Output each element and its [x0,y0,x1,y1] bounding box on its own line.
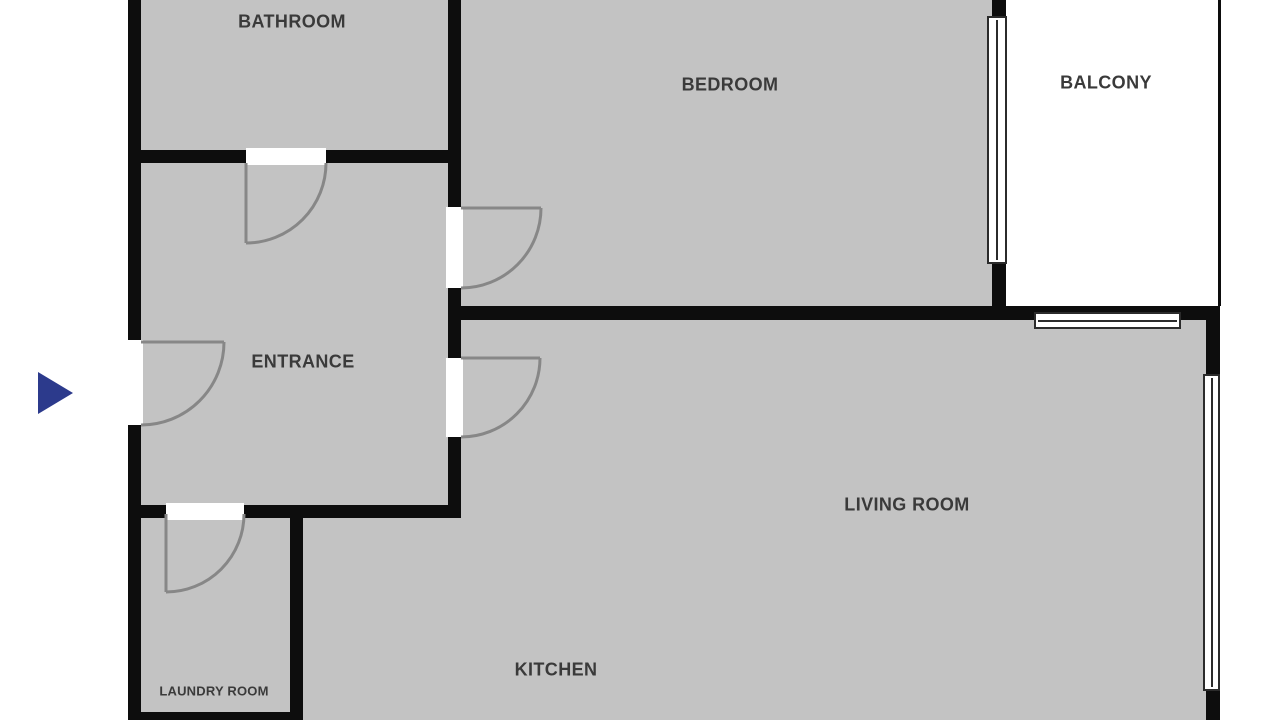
door-arc-laundry [166,514,244,592]
room-label-balcony: BALCONY [1060,73,1152,94]
floor-plan: BATHROOM BEDROOM BALCONY ENTRANCE LIVING… [0,0,1280,720]
door-arc-front [141,342,224,425]
room-label-kitchen: KITCHEN [515,660,598,681]
room-label-living-room: LIVING ROOM [844,495,969,516]
door-arc-bedroom [461,208,541,288]
door-swing-layer [0,0,1280,720]
room-label-entrance: ENTRANCE [251,352,354,373]
door-arc-bathroom [246,163,326,243]
room-label-bathroom: BATHROOM [238,12,346,33]
entrance-direction-arrow-icon [38,372,73,414]
room-label-bedroom: BEDROOM [682,75,779,96]
room-label-laundry-room: LAUNDRY ROOM [159,684,268,699]
door-arc-kitchen [461,358,540,437]
